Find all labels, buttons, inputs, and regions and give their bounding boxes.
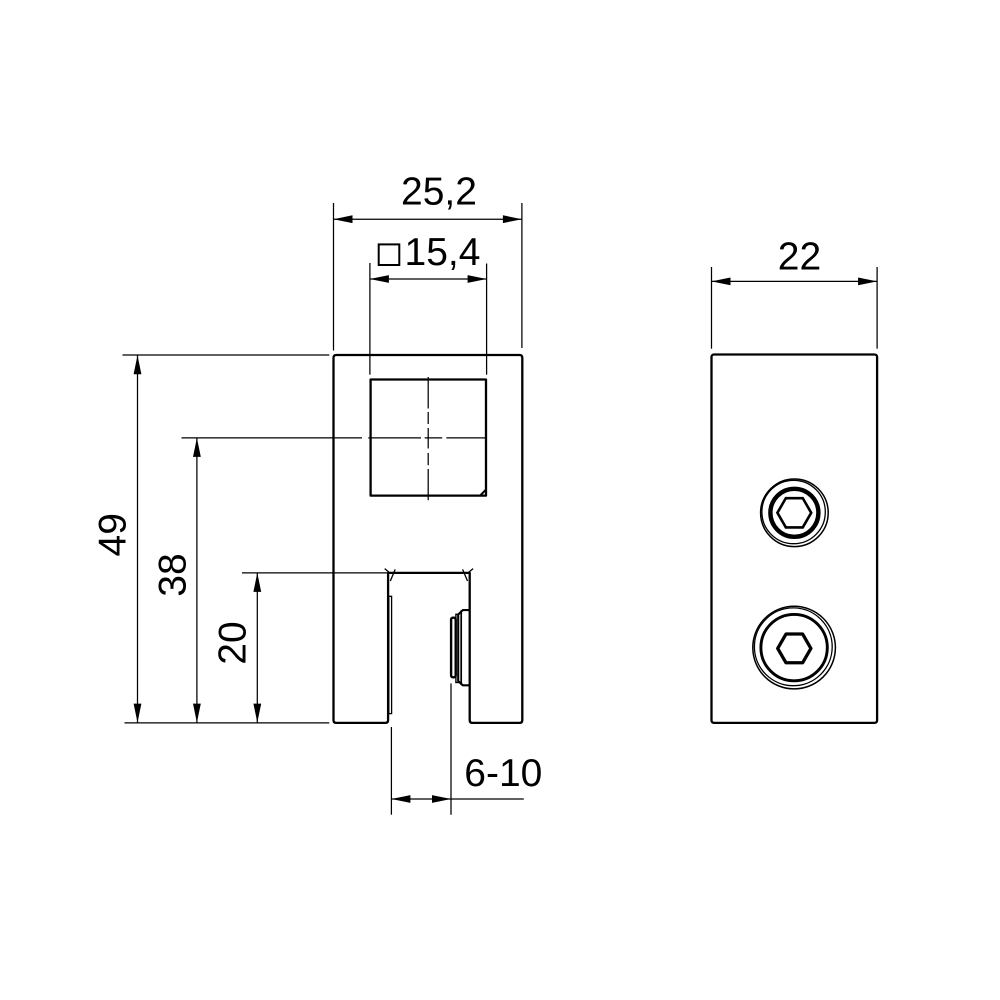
svg-text:22: 22: [778, 236, 821, 279]
svg-text:6-10: 6-10: [464, 752, 542, 795]
svg-text:20: 20: [211, 621, 254, 664]
svg-text:25,2: 25,2: [401, 170, 477, 213]
svg-text:15,4: 15,4: [405, 231, 481, 274]
svg-text:38: 38: [152, 553, 195, 596]
svg-text:49: 49: [91, 513, 134, 556]
